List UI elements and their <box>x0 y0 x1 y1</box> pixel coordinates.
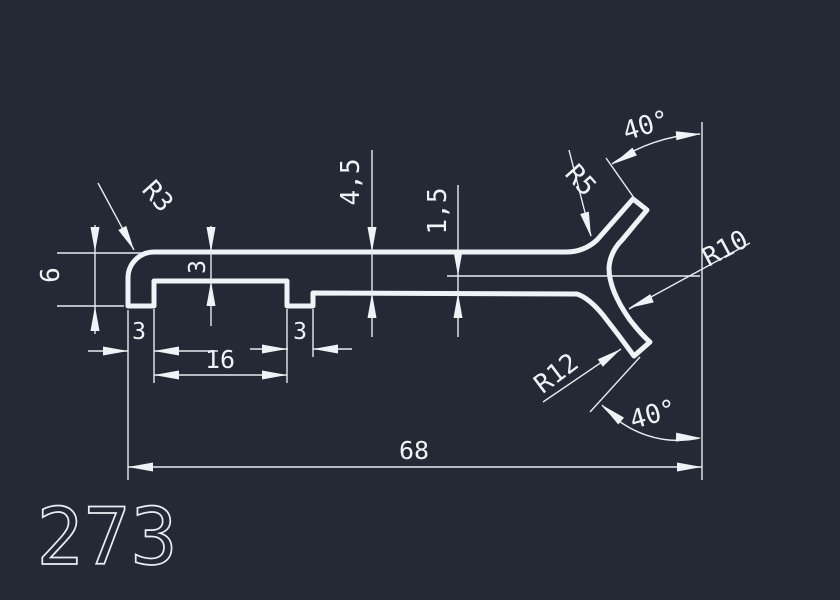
dim-label-r12: R12 <box>529 348 585 400</box>
dim-label-r3: R3 <box>136 175 179 218</box>
dim-angle-top-lines <box>606 134 700 205</box>
dim-label-r10: R10 <box>698 225 754 274</box>
dim-label-4-5: 4,5 <box>336 159 366 206</box>
dim-label-angle-bottom: 40° <box>627 394 680 436</box>
dim-label-68: 68 <box>399 436 429 465</box>
dim-label-r5: R5 <box>559 159 602 202</box>
dimension-labels: 6 R3 3 4,5 1,5 R5 40° R10 R12 40° 68 16 … <box>36 105 753 465</box>
dimension-arrowheads <box>91 130 703 472</box>
dim-label-1-5: 1,5 <box>423 188 453 235</box>
dim-label-foot-right-3: 3 <box>293 319 307 345</box>
cad-viewport[interactable]: 6 R3 3 4,5 1,5 R5 40° R10 R12 40° 68 16 … <box>0 0 840 600</box>
dim-label-angle-top: 40° <box>619 105 673 147</box>
dim-label-foot-left-3: 3 <box>132 319 146 345</box>
cad-canvas[interactable]: 6 R3 3 4,5 1,5 R5 40° R10 R12 40° 68 16 … <box>0 0 840 600</box>
part-number: 273 <box>37 493 178 583</box>
profile-path <box>128 199 650 356</box>
dim-label-16: 16 <box>205 345 235 374</box>
dim-15-lines <box>447 185 700 337</box>
dim-label-web-3: 3 <box>185 260 211 274</box>
profile-outline <box>128 199 650 356</box>
dim-label-height-6: 6 <box>36 267 66 283</box>
